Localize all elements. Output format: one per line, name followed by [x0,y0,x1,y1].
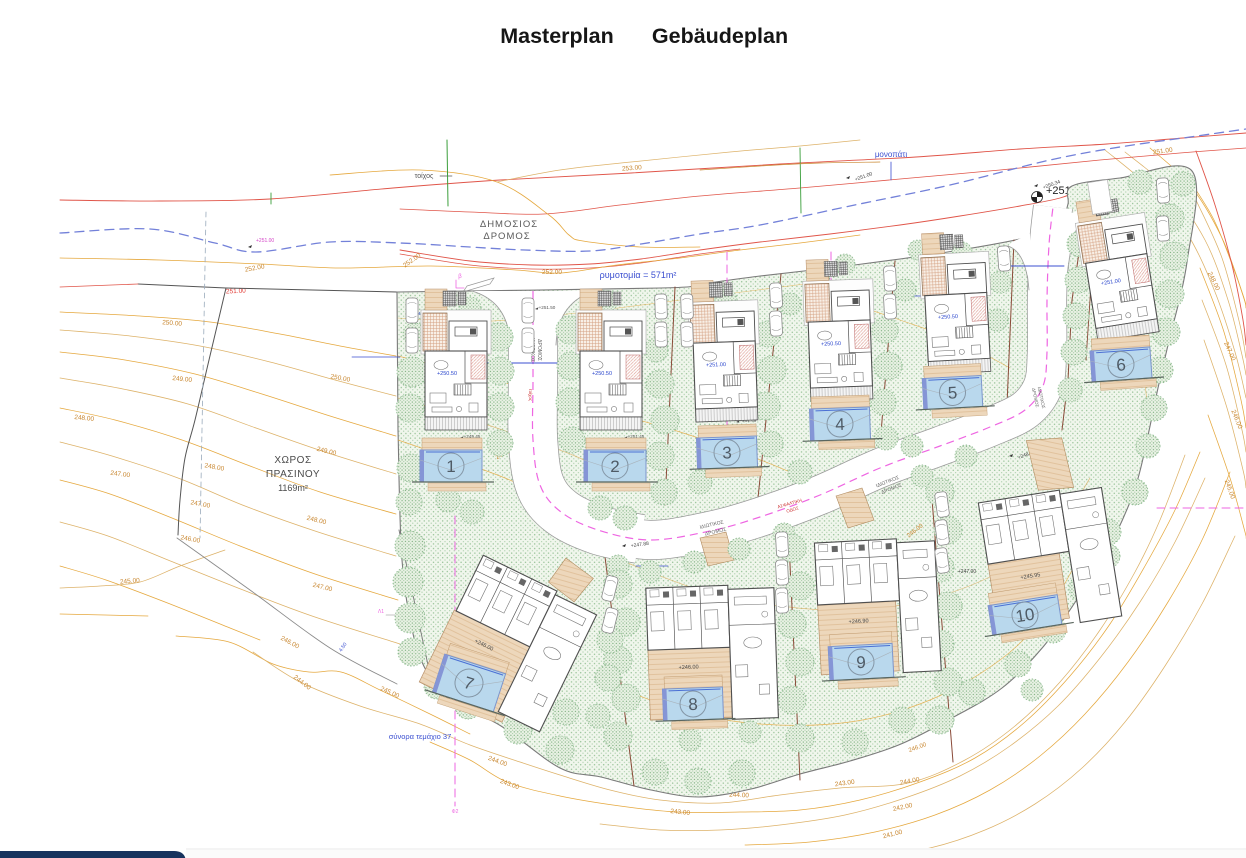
svg-text:245.00: 245.00 [120,577,141,585]
svg-text:β: β [458,274,462,280]
svg-text:Masterplan: Masterplan [500,24,614,48]
svg-text:Gebäudeplan: Gebäudeplan [652,24,788,48]
svg-text:4: 4 [835,415,845,434]
svg-text:+250.50: +250.50 [437,371,457,377]
svg-text:250.00: 250.00 [162,319,183,327]
svg-text:ΔΡΟΜΟΣ: ΔΡΟΜΟΣ [483,231,530,242]
svg-text:+251.00: +251.00 [706,362,726,369]
svg-text:+250.50: +250.50 [592,371,612,377]
svg-text:ΧΩΡΟΣ: ΧΩΡΟΣ [274,455,311,466]
svg-text:Λ1: Λ1 [378,609,384,615]
svg-text:1: 1 [446,457,455,476]
svg-text:8: 8 [688,695,698,714]
svg-text:ΠΡΑΣΙΝΟΥ: ΠΡΑΣΙΝΟΥ [266,469,320,480]
svg-text:+251.00: +251.00 [256,238,274,244]
svg-text:+250.50: +250.50 [938,314,958,321]
svg-text:1169m²: 1169m² [278,483,308,493]
svg-text:ΔΡΟΜΟΣ: ΔΡΟΜΟΣ [536,339,542,361]
svg-text:+246.90: +246.90 [848,618,868,625]
svg-text:2: 2 [610,457,619,476]
svg-text:μονοπάτι: μονοπάτι [875,150,908,159]
svg-text:σύνορα τεμάχιο 37: σύνορα τεμάχιο 37 [389,732,452,741]
svg-text:3: 3 [722,443,732,462]
svg-text:5: 5 [947,383,957,402]
svg-text:+250.50: +250.50 [821,341,841,348]
svg-text:τοίχος: τοίχος [415,172,434,180]
svg-text:+247.00: +247.00 [958,569,976,575]
svg-text:253.00: 253.00 [622,164,643,172]
svg-text:ρυμοτομία = 571m²: ρυμοτομία = 571m² [600,270,677,280]
svg-text:252.00: 252.00 [542,269,562,276]
svg-text:Φ2: Φ2 [452,809,459,815]
svg-text:6: 6 [1116,355,1127,375]
svg-text:τοίχος: τοίχος [528,389,533,402]
svg-text:+246.00: +246.00 [678,664,698,671]
svg-text:10: 10 [1014,605,1036,627]
svg-text:+251.50: +251.50 [539,305,556,310]
svg-text:9: 9 [856,653,866,672]
svg-text:ΔΗΜΟΣΙΟΣ: ΔΗΜΟΣΙΟΣ [480,219,538,230]
